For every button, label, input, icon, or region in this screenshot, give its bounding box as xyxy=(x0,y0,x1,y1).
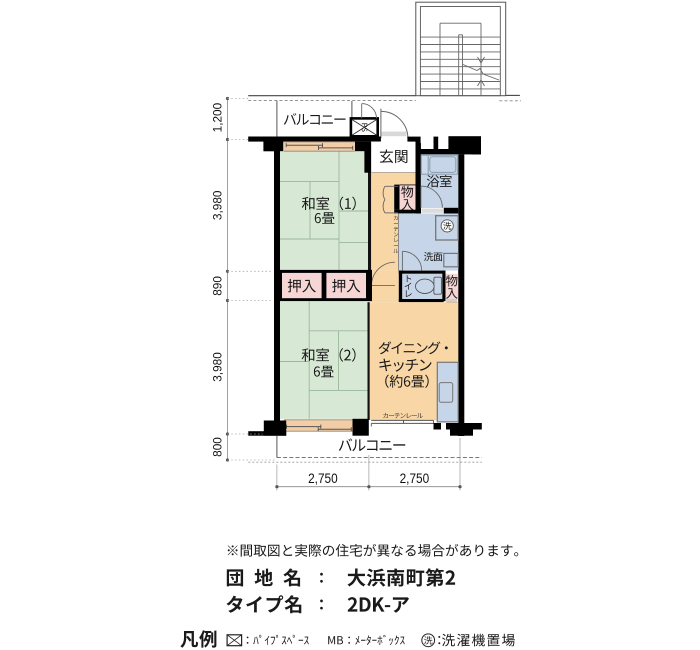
svg-text:890: 890 xyxy=(211,276,225,296)
svg-text:3,980: 3,980 xyxy=(211,352,225,382)
svg-text:800: 800 xyxy=(211,437,225,457)
svg-text:2,750: 2,750 xyxy=(308,470,338,486)
svg-text:3,980: 3,980 xyxy=(211,190,225,220)
svg-text:1,200: 1,200 xyxy=(211,102,225,132)
svg-text:2,750: 2,750 xyxy=(400,470,430,486)
